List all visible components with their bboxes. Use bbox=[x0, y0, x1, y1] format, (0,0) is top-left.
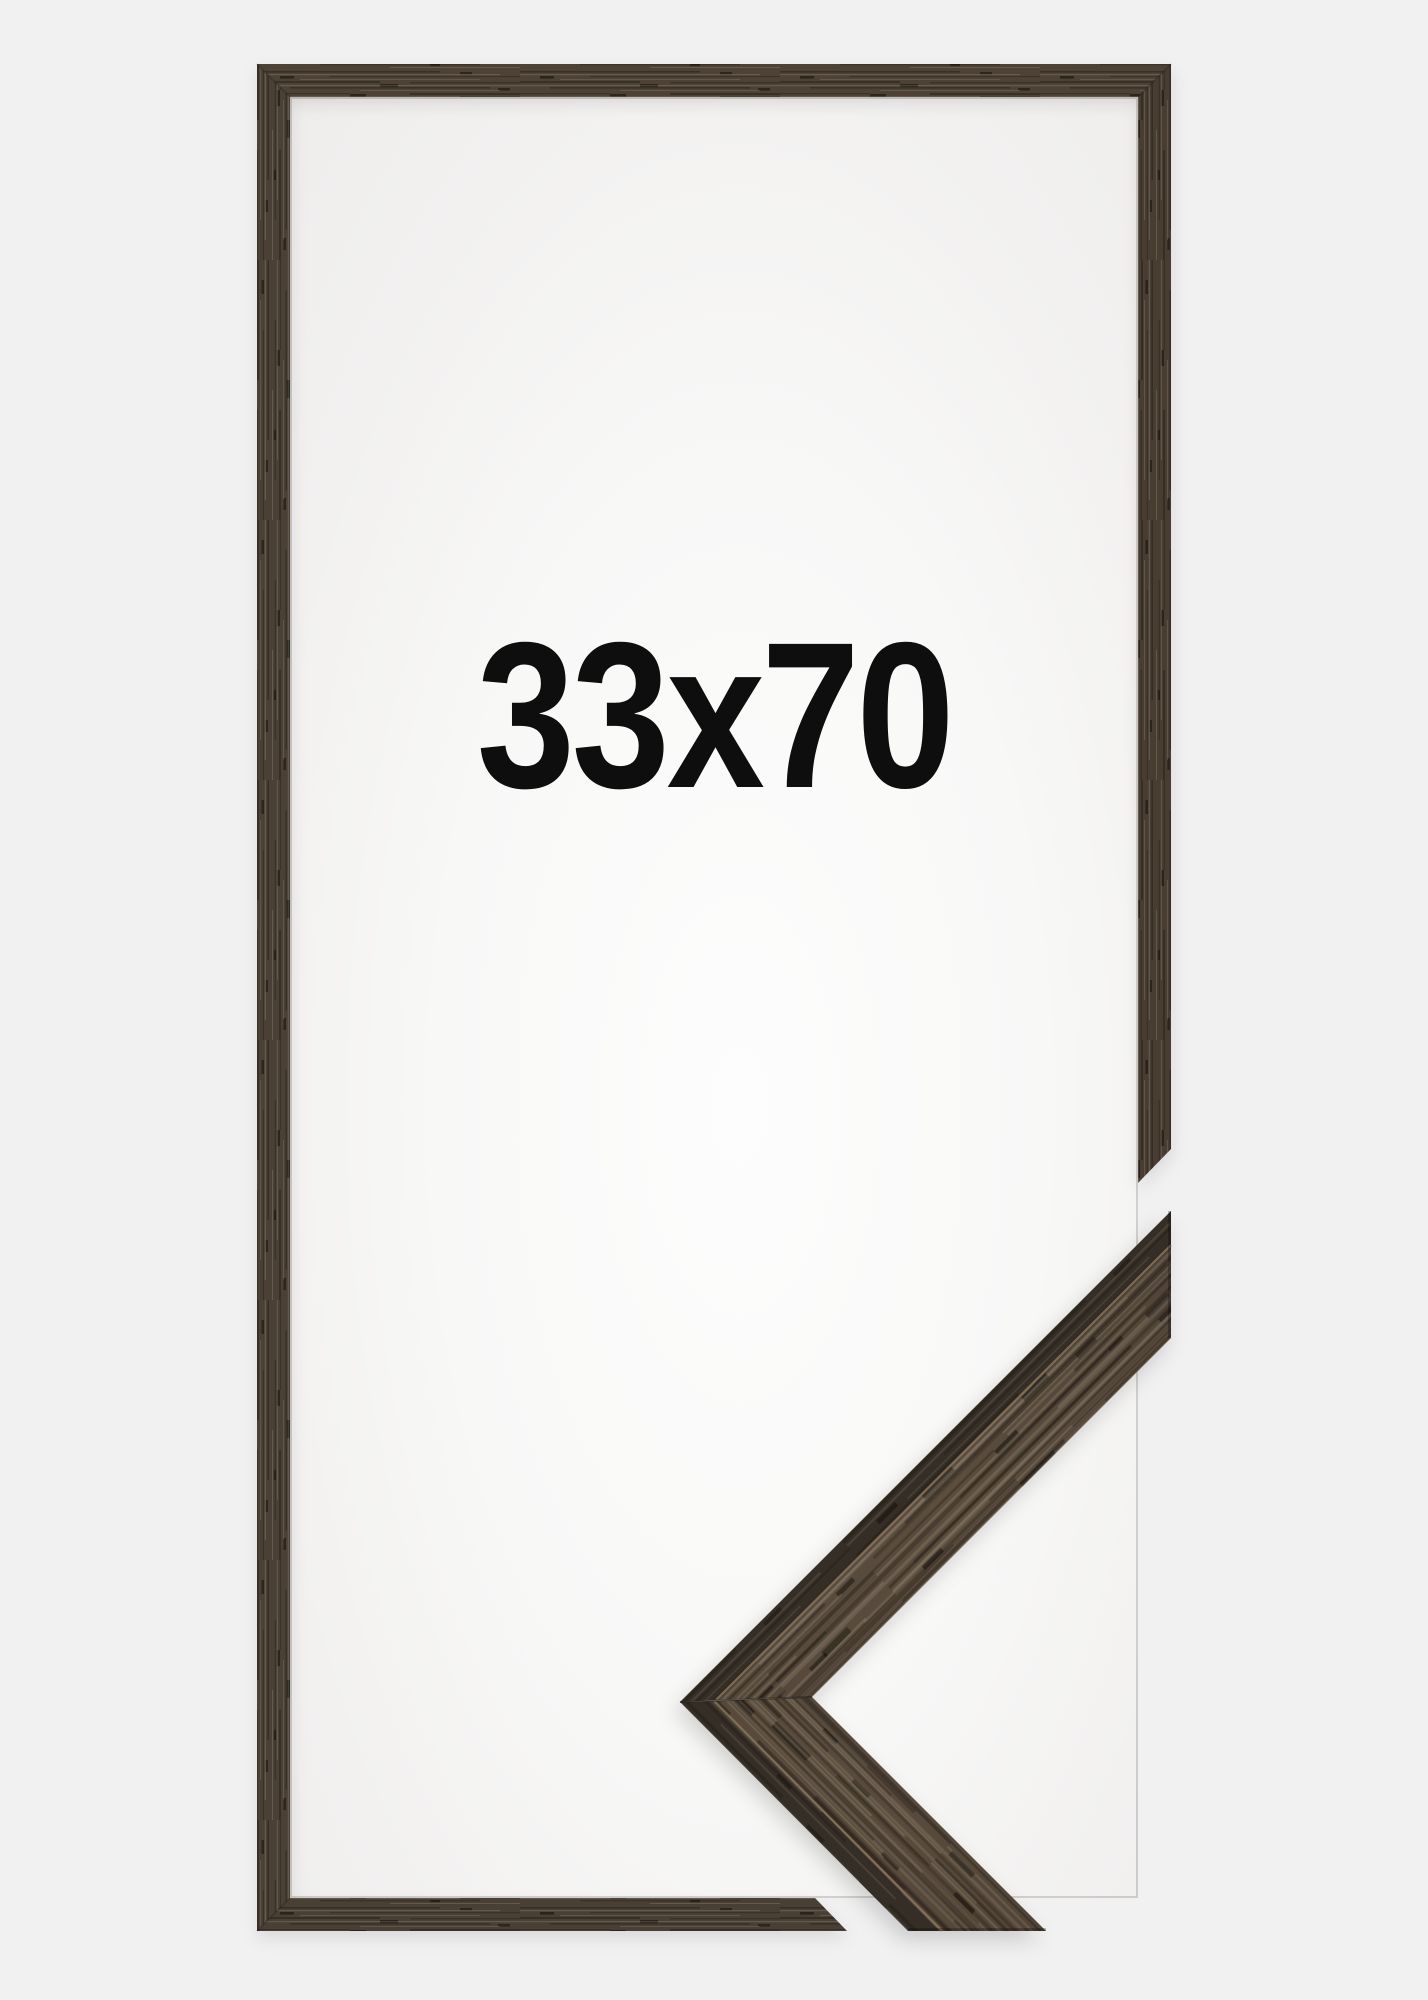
frame-bottom-bar bbox=[257, 1898, 847, 1931]
frame-opening-paper bbox=[290, 97, 1138, 1898]
frame-photo-graphic bbox=[0, 0, 1428, 2000]
frame-opening bbox=[290, 97, 1138, 1898]
frame-left-bar bbox=[257, 64, 290, 1931]
product-image: 33x70 bbox=[0, 0, 1428, 2000]
size-label: 33x70 bbox=[354, 612, 1075, 820]
frame-top-bar bbox=[257, 64, 1171, 97]
frame-right-bar bbox=[1138, 64, 1171, 1183]
